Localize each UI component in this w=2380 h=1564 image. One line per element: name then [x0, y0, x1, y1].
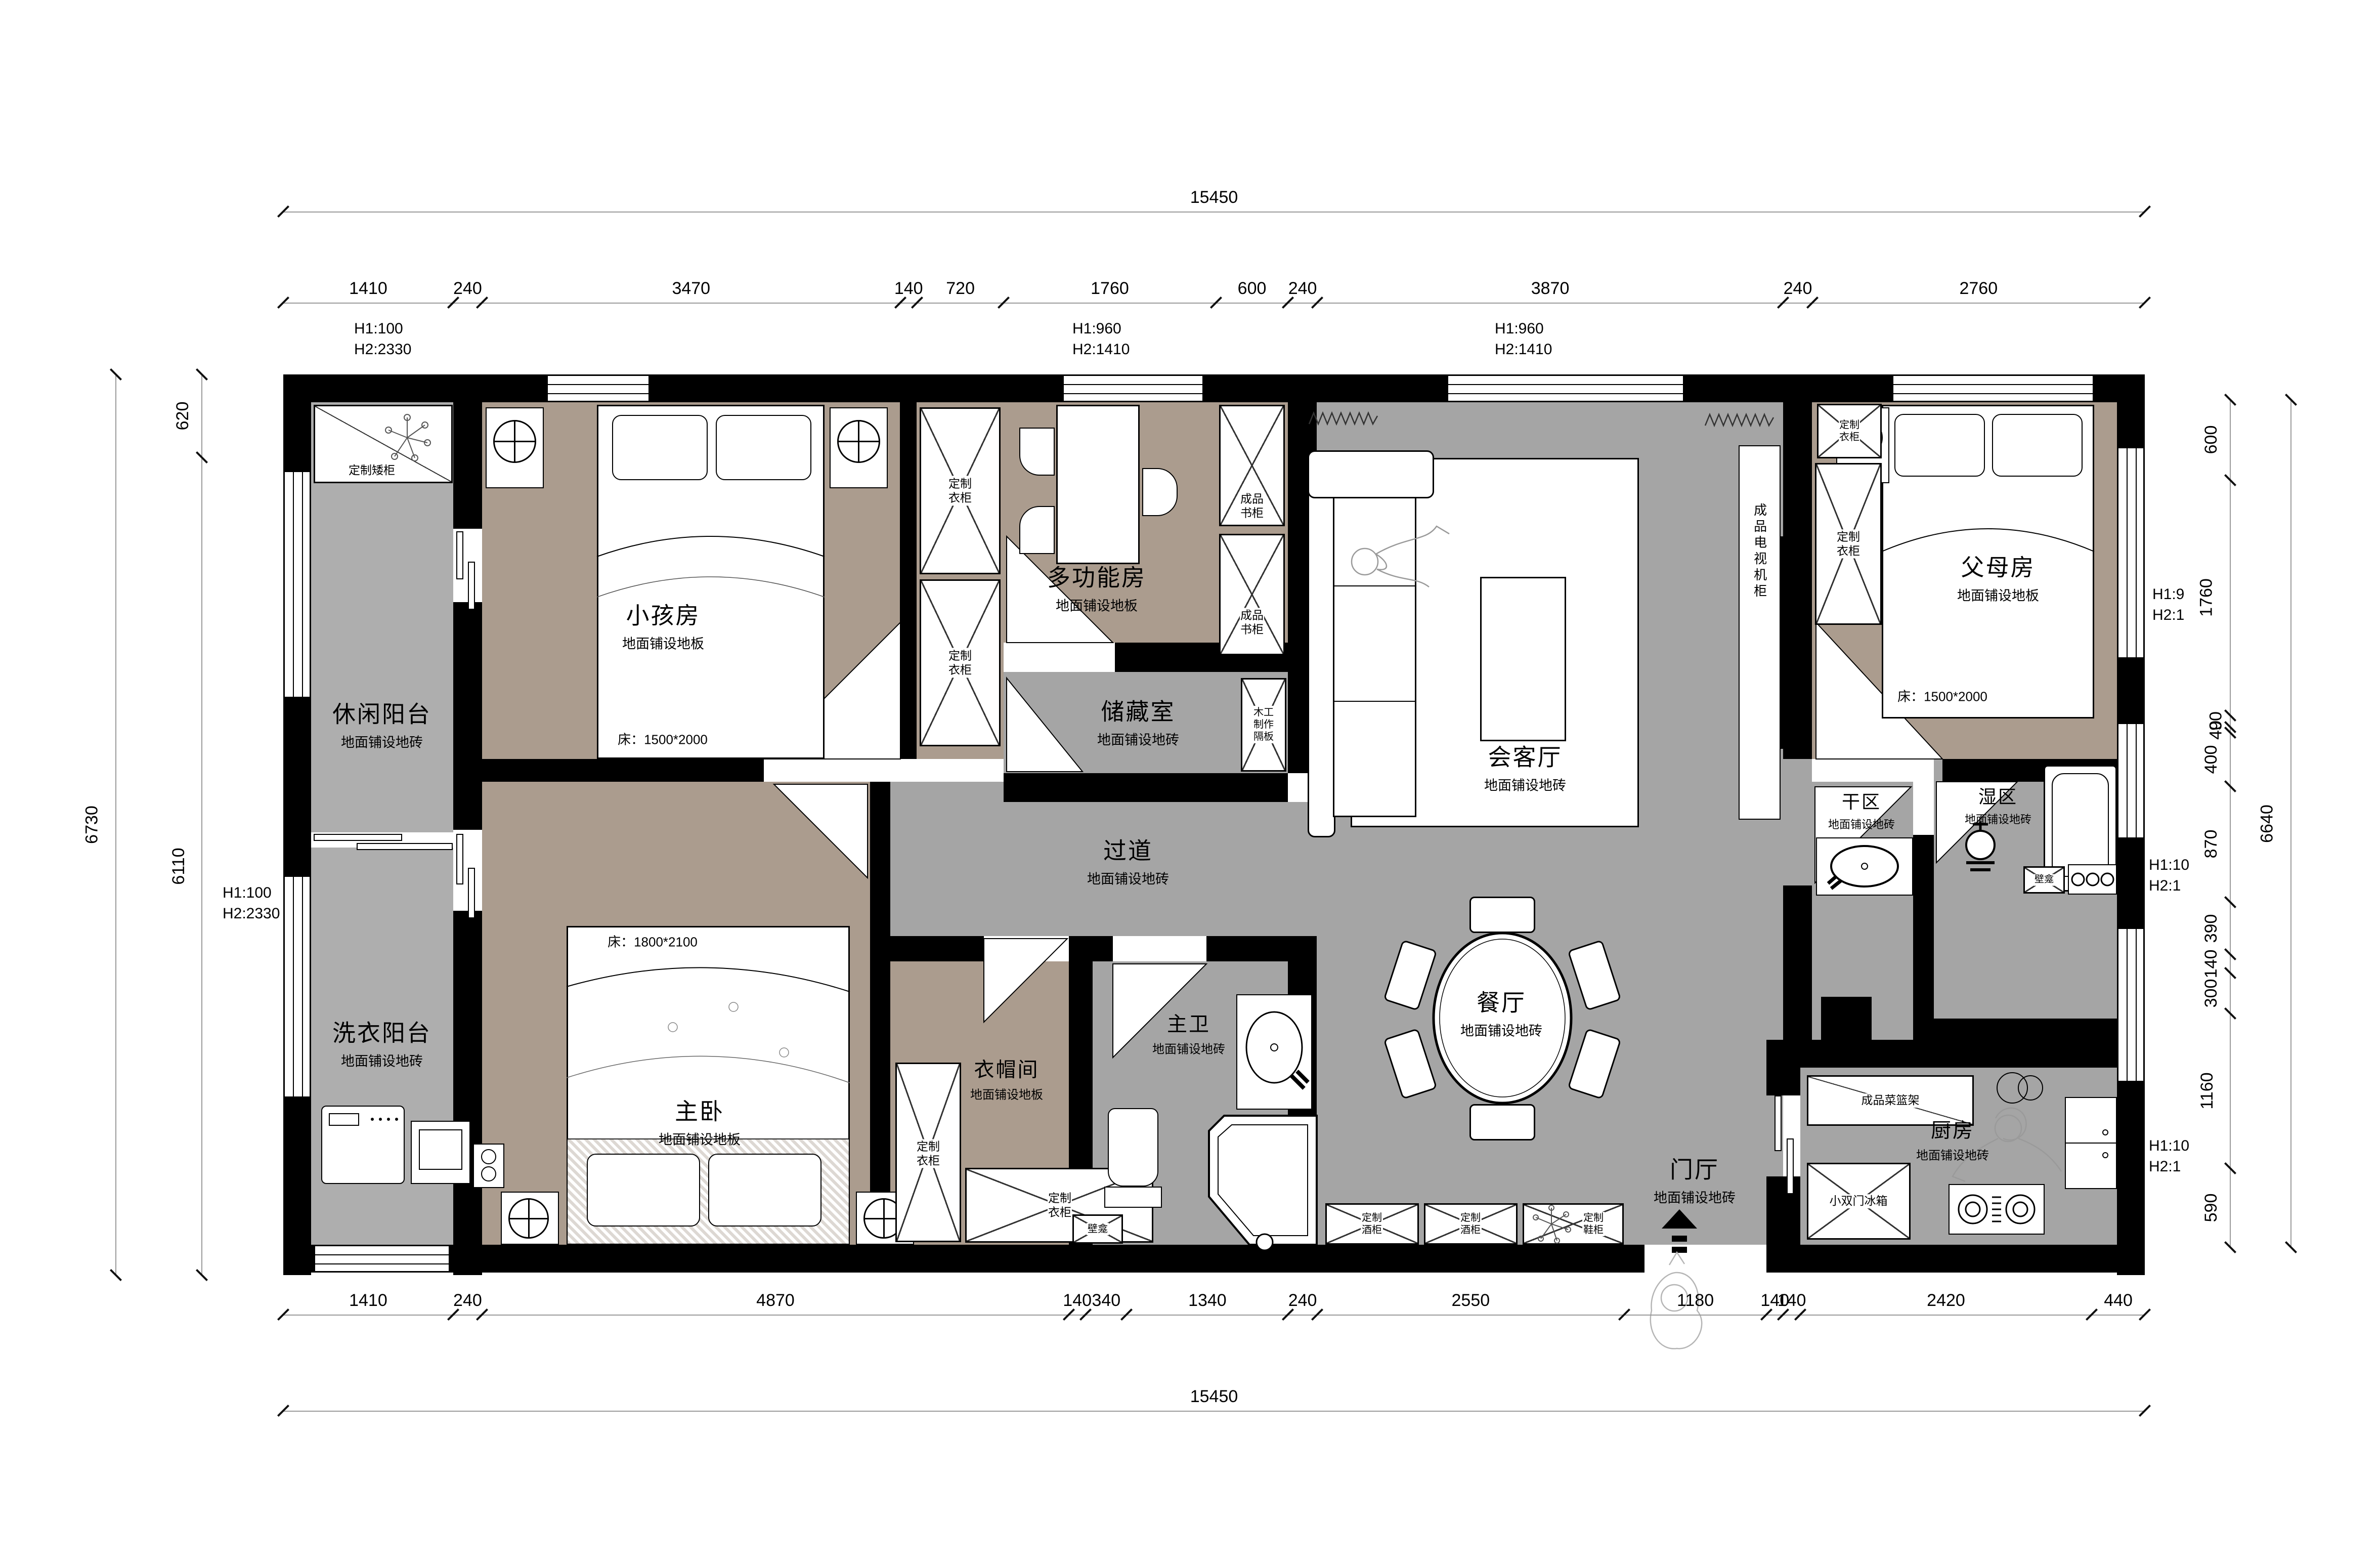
bath-toilet: [1108, 1108, 1158, 1187]
multi-chair-3: [1142, 468, 1178, 516]
plant-icon: [384, 415, 430, 460]
parents-pillow-2: [1992, 414, 2083, 477]
dining-label: 餐厅 地面铺设地砖: [1460, 985, 1542, 1040]
window-kitchen-right: [2117, 927, 2145, 1082]
dim-left-detail: 620 6110: [157, 374, 202, 1275]
cloak-wardrobe-h-label: 定制 衣柜: [1048, 1191, 1072, 1219]
master-room-label: 主卧 地面铺设地板: [659, 1093, 741, 1149]
parents-room-label: 父母房 地面铺设地板: [1957, 549, 2039, 605]
dim-right-overall: 6640: [2246, 400, 2291, 1247]
bathtub-inner: [2052, 773, 2109, 877]
multi-chair-2: [1019, 506, 1055, 554]
wall-balcony-1: [453, 402, 482, 529]
kitchen-pots-icon: [1993, 1070, 2049, 1106]
sofa-back: [1308, 450, 1335, 837]
master-pillow-1: [587, 1154, 700, 1227]
wet-toilet-icon: [1955, 817, 2006, 883]
dim-right-overall-value: 6640: [2258, 805, 2277, 843]
wet-area-label: 湿区 地面铺设地砖: [1965, 782, 2031, 827]
bath-toilet-tank: [1104, 1187, 1162, 1208]
radiator-left-icon: [1309, 411, 1377, 426]
wall-bath-top-a: [1069, 936, 1113, 961]
bookcase-2-label: 成品 书柜: [1240, 608, 1264, 637]
balcony-divider-slider-2: [357, 843, 453, 850]
tv-cabinet-label: 成品电视机柜: [1751, 503, 1767, 600]
dim-left-overall-value: 6730: [82, 806, 102, 844]
kids-balcony-slider-1: [456, 531, 463, 579]
storage-label: 储藏室 地面铺设地砖: [1097, 694, 1179, 749]
low-cabinet-label: 定制矮柜: [349, 463, 395, 478]
wall-storage-bottom: [1004, 773, 1288, 802]
window-leisure-balcony: [283, 471, 311, 698]
floor-plan-canvas: 定制矮柜 床：1500*2000 定制 衣柜 定制 衣柜 成品 书柜 成品 书柜…: [0, 0, 2380, 1564]
dry-area-floor-2: [1783, 759, 1812, 885]
foyer-label: 门厅 地面铺设地砖: [1654, 1152, 1736, 1207]
storage-door-swing: [1007, 678, 1083, 772]
master-lamp-left-icon: [508, 1198, 549, 1239]
laundry-side-circles: [477, 1148, 500, 1184]
washing-machine-dots: [369, 1116, 400, 1123]
annotation-left-mid: H1:100 H2:2330: [223, 883, 280, 924]
window-wet-right: [2117, 723, 2145, 839]
dry-area-label: 干区 地面铺设地砖: [1828, 787, 1895, 832]
dim-top-overall-value: 15450: [1190, 188, 1238, 207]
wall-balcony-2: [453, 602, 482, 830]
living-label: 会客厅 地面铺设地砖: [1484, 739, 1566, 794]
kitchen-slider-1: [1775, 1095, 1782, 1151]
window-bottom-left: [314, 1245, 450, 1273]
window-multi: [1062, 374, 1204, 402]
multi-chair-1: [1019, 428, 1055, 476]
window-parents-right: [2117, 447, 2145, 659]
kids-bed-size: 床：1500*2000: [618, 730, 708, 748]
tv-screen: [1780, 536, 1785, 749]
bookcase-1-label: 成品 书柜: [1240, 491, 1264, 520]
kitchen-label: 厨房 地面铺设地砖: [1916, 1114, 1989, 1163]
bookcase-2: [1219, 534, 1285, 655]
annotation-right-mid: H1:10 H2:1: [2149, 855, 2189, 896]
master-bed-size: 床：1800*2100: [605, 932, 700, 951]
annotation-right-bottom: H1:10 H2:1: [2149, 1136, 2189, 1177]
wall-wet-bottom: [1934, 1019, 2117, 1040]
kids-wardrobe-1-label: 定制 衣柜: [947, 476, 973, 505]
washing-machine-panel: [329, 1113, 359, 1126]
parents-closet-large-label: 定制 衣柜: [1836, 529, 1860, 558]
radiator-right-icon: [1705, 412, 1773, 428]
wall-bottom-left: [283, 1245, 1645, 1273]
shoe-cabinet-plant-icon: [1533, 1205, 1570, 1243]
sofa-chaise: [1308, 450, 1434, 498]
annotation-top-mid1: H1:960 H2:1410: [1072, 319, 1130, 360]
basket-rack-label: 成品菜篮架: [1860, 1093, 1921, 1108]
annotation-top-left: H1:100 H2:2330: [354, 319, 411, 360]
kids-lamp-right-icon: [837, 420, 880, 463]
kitchen-slider-2: [1787, 1138, 1794, 1194]
master-pillow-2: [708, 1154, 821, 1227]
kids-balcony-slider-2: [468, 562, 475, 610]
wall-bath-top-b: [1206, 936, 1288, 961]
person-lying-icon: [1340, 506, 1452, 617]
annotation-right-top: H1:9 H2:1: [2152, 584, 2184, 625]
wall-bottom-right: [1766, 1245, 2145, 1273]
kitchen-stove-burners: [1952, 1187, 2042, 1232]
multi-table: [1056, 405, 1140, 564]
wine-cabinet-2-label: 定制 酒柜: [1459, 1212, 1482, 1236]
wet-counter-circles: [2070, 868, 2115, 891]
window-parents: [1892, 374, 2094, 402]
shoe-cabinet-label: 定制 鞋柜: [1582, 1212, 1605, 1236]
wall-corner-chunk: [1821, 997, 1872, 1068]
dim-bottom-overall: 15450: [283, 1384, 2145, 1412]
hallway-label: 过道 地面铺设地砖: [1087, 833, 1169, 888]
window-laundry-balcony: [283, 875, 311, 1098]
kids-room-label: 小孩房 地面铺设地板: [622, 598, 704, 653]
dry-vanity-basin: [1821, 841, 1908, 892]
kids-pillow-1: [612, 415, 708, 480]
wine-cabinet-1-label: 定制 酒柜: [1361, 1212, 1383, 1236]
wall-kitchen-left-a: [1766, 1040, 1800, 1095]
bath-niche-label: 壁龛: [1087, 1223, 1109, 1235]
wall-kids-bottom: [482, 759, 764, 782]
annotation-top-mid2: H1:960 H2:1410: [1495, 319, 1552, 360]
wall-dry-wet: [1913, 835, 1934, 1040]
dim-left-overall: 6730: [71, 374, 116, 1275]
master-door-swing: [774, 784, 868, 878]
cloakroom-label: 衣帽间 地面铺设地板: [970, 1053, 1043, 1103]
parents-bed-size: 床：1500*2000: [1897, 687, 1987, 705]
master-bath-label: 主卫 地面铺设地砖: [1152, 1008, 1225, 1057]
dining-chair-top: [1469, 897, 1535, 933]
kids-wardrobe-2-label: 定制 衣柜: [947, 648, 973, 678]
wall-living-parents: [1783, 402, 1812, 759]
multi-room-label: 多功能房 地面铺设地板: [1047, 560, 1146, 615]
parents-closet-small-label: 定制 衣柜: [1839, 418, 1860, 444]
wall-master-right: [870, 782, 890, 1245]
fridge-label: 小双门冰箱: [1828, 1194, 1889, 1208]
storage-partition-label: 木工 制作 隔板: [1253, 706, 1274, 743]
laundry-balcony-label: 洗衣阳台 地面铺设地砖: [332, 1015, 431, 1070]
parents-pillow-1: [1894, 414, 1985, 477]
dim-top-overall: 15450: [283, 185, 2145, 213]
bath-shower: [1209, 1116, 1317, 1245]
wall-balcony-3: [453, 911, 482, 1275]
dim-bottom-overall-value: 15450: [1190, 1387, 1238, 1407]
wall-kitchen-left-b: [1766, 1176, 1800, 1245]
tv-cabinet: [1739, 445, 1781, 820]
dim-right-detail: 600 1760 90 40 400 870 390 140 300 1160 …: [2185, 400, 2231, 1247]
coffee-table: [1480, 577, 1566, 741]
dim-top-detail: 1410 240 3470 140 720 1760 600 240 3870 …: [283, 276, 2145, 304]
cloak-wardrobe-v-label: 定制 衣柜: [916, 1139, 940, 1168]
laundry-slider-2: [468, 868, 475, 918]
wet-niche-label: 壁龛: [2033, 874, 2055, 886]
laundry-sink-basin: [419, 1129, 462, 1170]
cloakroom-door-swing: [984, 939, 1067, 1022]
laundry-slider-1: [456, 834, 463, 884]
balcony-divider-slider-1: [314, 834, 402, 841]
wall-cloak-top: [890, 936, 984, 961]
window-kids: [546, 374, 650, 402]
kids-lamp-left-icon: [493, 420, 536, 463]
window-living: [1447, 374, 1684, 402]
dim-bottom-detail: 1410 240 4870 140 340 1340 240 2550 1180…: [283, 1288, 2145, 1316]
kids-pillow-2: [716, 415, 811, 480]
bath-vanity-basin: [1240, 1004, 1308, 1101]
dining-chair-bottom: [1469, 1104, 1535, 1140]
wall-kids-closet: [900, 402, 917, 759]
leisure-balcony-label: 休闲阳台 地面铺设地砖: [332, 696, 431, 751]
